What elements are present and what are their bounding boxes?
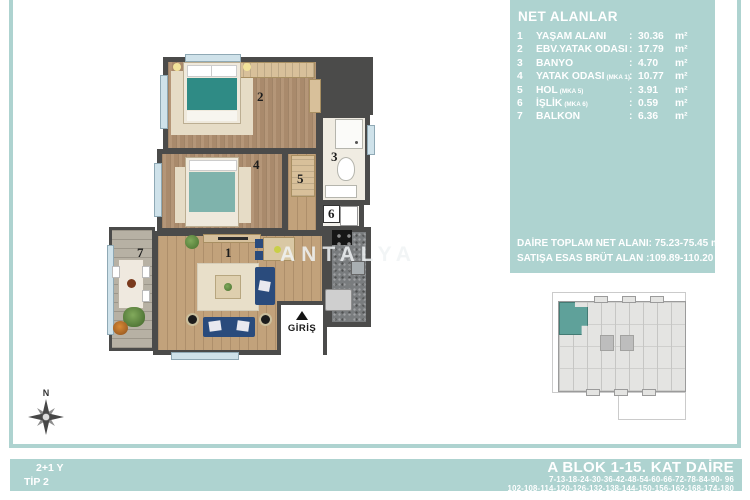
building-wing (650, 296, 664, 303)
plant (224, 283, 232, 291)
chair (112, 266, 120, 278)
gross-label: SATIŞA ESAS BRÜT ALAN : (517, 253, 649, 264)
plant (185, 235, 199, 249)
compass: N (24, 388, 68, 444)
master-bed (183, 62, 241, 124)
dresser (309, 79, 321, 113)
cushion (208, 320, 221, 332)
bed-blanket (187, 78, 237, 110)
window (367, 125, 375, 155)
row-unit: m² (675, 111, 709, 122)
row-label: İŞLİK(MKA 6) (536, 98, 629, 109)
net-areas-panel: NET ALANLAR 1 YAŞAM ALANI : 30.36 m² 2 E… (510, 0, 715, 273)
area-row: 5 HOL(MKA 5) : 3.91 m² (517, 85, 709, 98)
compass-rose-icon (27, 398, 65, 436)
row-label: BANYO (536, 58, 629, 69)
coffee-table (215, 275, 241, 299)
pillow (211, 65, 237, 77)
area-row: 4 YATAK ODASI(MKA 1) : 10.77 m² (517, 71, 709, 84)
compass-north-label: N (24, 388, 68, 398)
frame-border-bottom (9, 444, 741, 448)
building-core (620, 335, 634, 351)
row-value: 17.79 (638, 44, 675, 55)
room-label-bedroom: 4 (253, 157, 260, 173)
row-unit: m² (675, 98, 709, 109)
entrance-recess: GİRİŞ (281, 303, 323, 355)
room-label-living: 1 (225, 245, 232, 261)
row-label-text: YATAK ODASI (536, 71, 604, 82)
tv-unit (203, 234, 261, 243)
room-label-utility: 6 (323, 205, 340, 223)
bed (185, 157, 239, 227)
area-row: 7 BALKON : 6.36 m² (517, 111, 709, 124)
wall-block (277, 301, 323, 305)
row-separator: : (629, 44, 638, 55)
tv (218, 237, 248, 240)
row-value: 6.36 (638, 111, 675, 122)
row-separator: : (629, 98, 638, 109)
toilet (337, 157, 355, 181)
area-row: 1 YAŞAM ALANI : 30.36 m² (517, 31, 709, 44)
pillow (189, 160, 237, 171)
row-separator: : (629, 31, 638, 42)
row-sublabel: (MKA 5) (560, 88, 584, 95)
row-label-text: YAŞAM ALANI (536, 31, 606, 42)
cushion (236, 320, 249, 332)
row-number: 1 (517, 31, 536, 42)
row-number: 4 (517, 71, 536, 82)
shower (335, 119, 363, 149)
bed-sheet (187, 111, 237, 121)
area-row: 6 İŞLİK(MKA 6) : 0.59 m² (517, 98, 709, 111)
building-wing (614, 389, 628, 396)
entrance-label: GİRİŞ (281, 323, 323, 334)
window (185, 54, 241, 62)
unit-type-block: 2+1 Y TİP 2 (22, 462, 64, 489)
room-label-balcony: 7 (137, 245, 144, 261)
row-separator: : (629, 71, 638, 82)
totals-block: DAİRE TOPLAM NET ALANI: 75.23-75.45 m² S… (517, 237, 728, 266)
row-number: 6 (517, 98, 536, 109)
bed-blanket (189, 172, 235, 212)
row-label: BALKON (536, 111, 629, 122)
speaker (186, 313, 199, 326)
row-value: 0.59 (638, 98, 675, 109)
row-separator: : (629, 58, 638, 69)
brochure-page: GİRİŞ 1 2 3 4 5 6 7 ANTALYA NET ALANLAR … (0, 0, 750, 500)
gross-line: SATIŞA ESAS BRÜT ALAN :109.89-110.20 m² (517, 252, 728, 267)
fridge (325, 289, 352, 311)
row-unit: m² (675, 58, 709, 69)
row-number: 2 (517, 44, 536, 55)
block-title: A BLOK 1-15. KAT DAİRE (508, 460, 734, 476)
armchair (255, 267, 275, 305)
floor-plan: GİRİŞ 1 2 3 4 5 6 7 ANTALYA (85, 45, 480, 410)
row-label: EBV.YATAK ODASI (536, 44, 629, 55)
frame-border-left (9, 0, 13, 448)
bowl (127, 279, 136, 288)
sofa (203, 317, 255, 337)
chair (142, 290, 150, 302)
row-label-text: EBV.YATAK ODASI (536, 44, 628, 55)
window (160, 75, 168, 129)
plant (113, 321, 128, 335)
frame-border-right (737, 0, 741, 448)
area-row: 3 BANYO : 4.70 m² (517, 58, 709, 71)
sink (325, 185, 357, 198)
dining-chair (255, 239, 263, 248)
area-row: 2 EBV.YATAK ODASI : 17.79 m² (517, 44, 709, 57)
pillow (187, 65, 213, 77)
total-net-label: DAİRE TOPLAM NET ALANI: (517, 238, 652, 249)
row-unit: m² (675, 71, 709, 82)
watermark: ANTALYA (280, 243, 417, 267)
row-separator: : (629, 85, 638, 96)
row-unit: m² (675, 31, 709, 42)
total-net-line: DAİRE TOPLAM NET ALANI: 75.23-75.45 m² (517, 237, 728, 252)
window (171, 352, 239, 360)
cushion (258, 280, 271, 292)
building-wing (622, 296, 636, 303)
lamp (173, 63, 181, 71)
row-value: 30.36 (638, 31, 675, 42)
row-sublabel: (MKA 6) (564, 101, 588, 108)
room-label-bathroom: 3 (331, 149, 338, 165)
building-wing (586, 389, 600, 396)
footer-bar: 2+1 Y TİP 2 A BLOK 1-15. KAT DAİRE 7-13-… (10, 459, 742, 491)
unit-type-line1: 2+1 Y (36, 462, 64, 476)
room-label-hall: 5 (297, 171, 304, 187)
row-label: YATAK ODASI(MKA 1) (536, 71, 629, 82)
row-separator: : (629, 111, 638, 122)
lamp (243, 63, 251, 71)
row-sublabel: (MKA 1) (606, 74, 630, 81)
window (154, 163, 162, 217)
total-net-value: 75.23-75.45 m² (655, 238, 723, 249)
row-label-text: İŞLİK (536, 98, 562, 109)
window (107, 245, 114, 335)
row-number: 5 (517, 85, 536, 96)
row-label-text: HOL (536, 85, 558, 96)
building-wing (594, 296, 608, 303)
gross-value: 109.89-110.20 m² (649, 253, 728, 264)
row-label-text: BALKON (536, 111, 580, 122)
row-value: 3.91 (638, 85, 675, 96)
entrance-arrow-icon (296, 311, 308, 320)
wall-block (321, 57, 373, 115)
row-value: 4.70 (638, 58, 675, 69)
row-number: 3 (517, 58, 536, 69)
building-wing (642, 389, 656, 396)
chair (142, 266, 150, 278)
speaker (259, 313, 272, 326)
panel-title: NET ALANLAR (518, 9, 618, 24)
unit-numbers-line2: 102-108-114-120-126-132-138-144-150-156-… (508, 485, 734, 494)
block-info: A BLOK 1-15. KAT DAİRE 7-13-18-24-30-36-… (508, 460, 734, 493)
row-label: HOL(MKA 5) (536, 85, 629, 96)
row-label-text: BANYO (536, 58, 573, 69)
row-number: 7 (517, 111, 536, 122)
building-core (600, 335, 614, 351)
row-unit: m² (675, 85, 709, 96)
area-table: 1 YAŞAM ALANI : 30.36 m² 2 EBV.YATAK ODA… (517, 31, 709, 125)
unit-type-line2: TİP 2 (24, 476, 64, 490)
row-unit: m² (675, 44, 709, 55)
dining-chair (255, 251, 263, 260)
shower-drain (355, 141, 358, 144)
room-label-master-bedroom: 2 (257, 89, 264, 105)
washer (340, 206, 358, 226)
row-value: 10.77 (638, 71, 675, 82)
balcony-table (118, 259, 144, 309)
row-label: YAŞAM ALANI (536, 31, 629, 42)
